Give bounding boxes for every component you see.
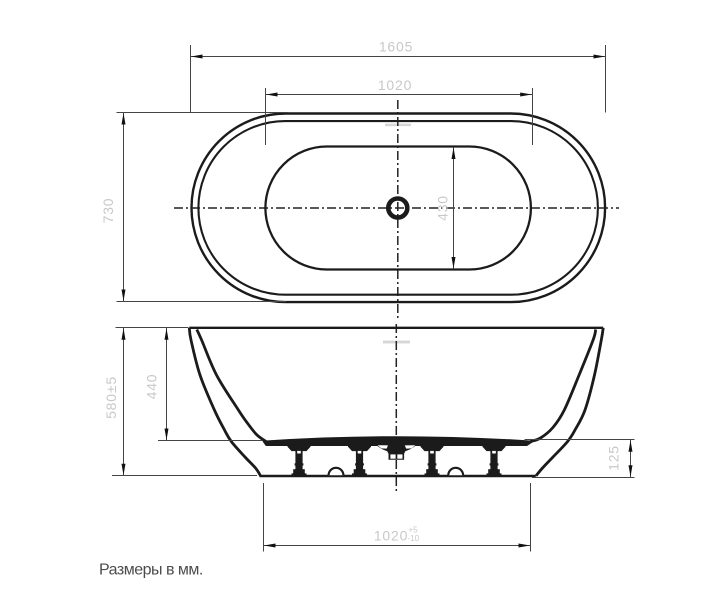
svg-text:125: 125 bbox=[606, 445, 622, 471]
svg-text:430: 430 bbox=[435, 195, 451, 221]
svg-text:-10: -10 bbox=[408, 534, 420, 543]
svg-text:580±5: 580±5 bbox=[103, 376, 119, 419]
svg-text:1020: 1020 bbox=[374, 528, 408, 544]
svg-text:1020: 1020 bbox=[378, 77, 412, 93]
svg-text:1605: 1605 bbox=[379, 39, 413, 55]
svg-text:730: 730 bbox=[100, 198, 116, 224]
svg-text:Размеры в мм.: Размеры в мм. bbox=[99, 562, 203, 579]
svg-text:440: 440 bbox=[144, 374, 160, 400]
